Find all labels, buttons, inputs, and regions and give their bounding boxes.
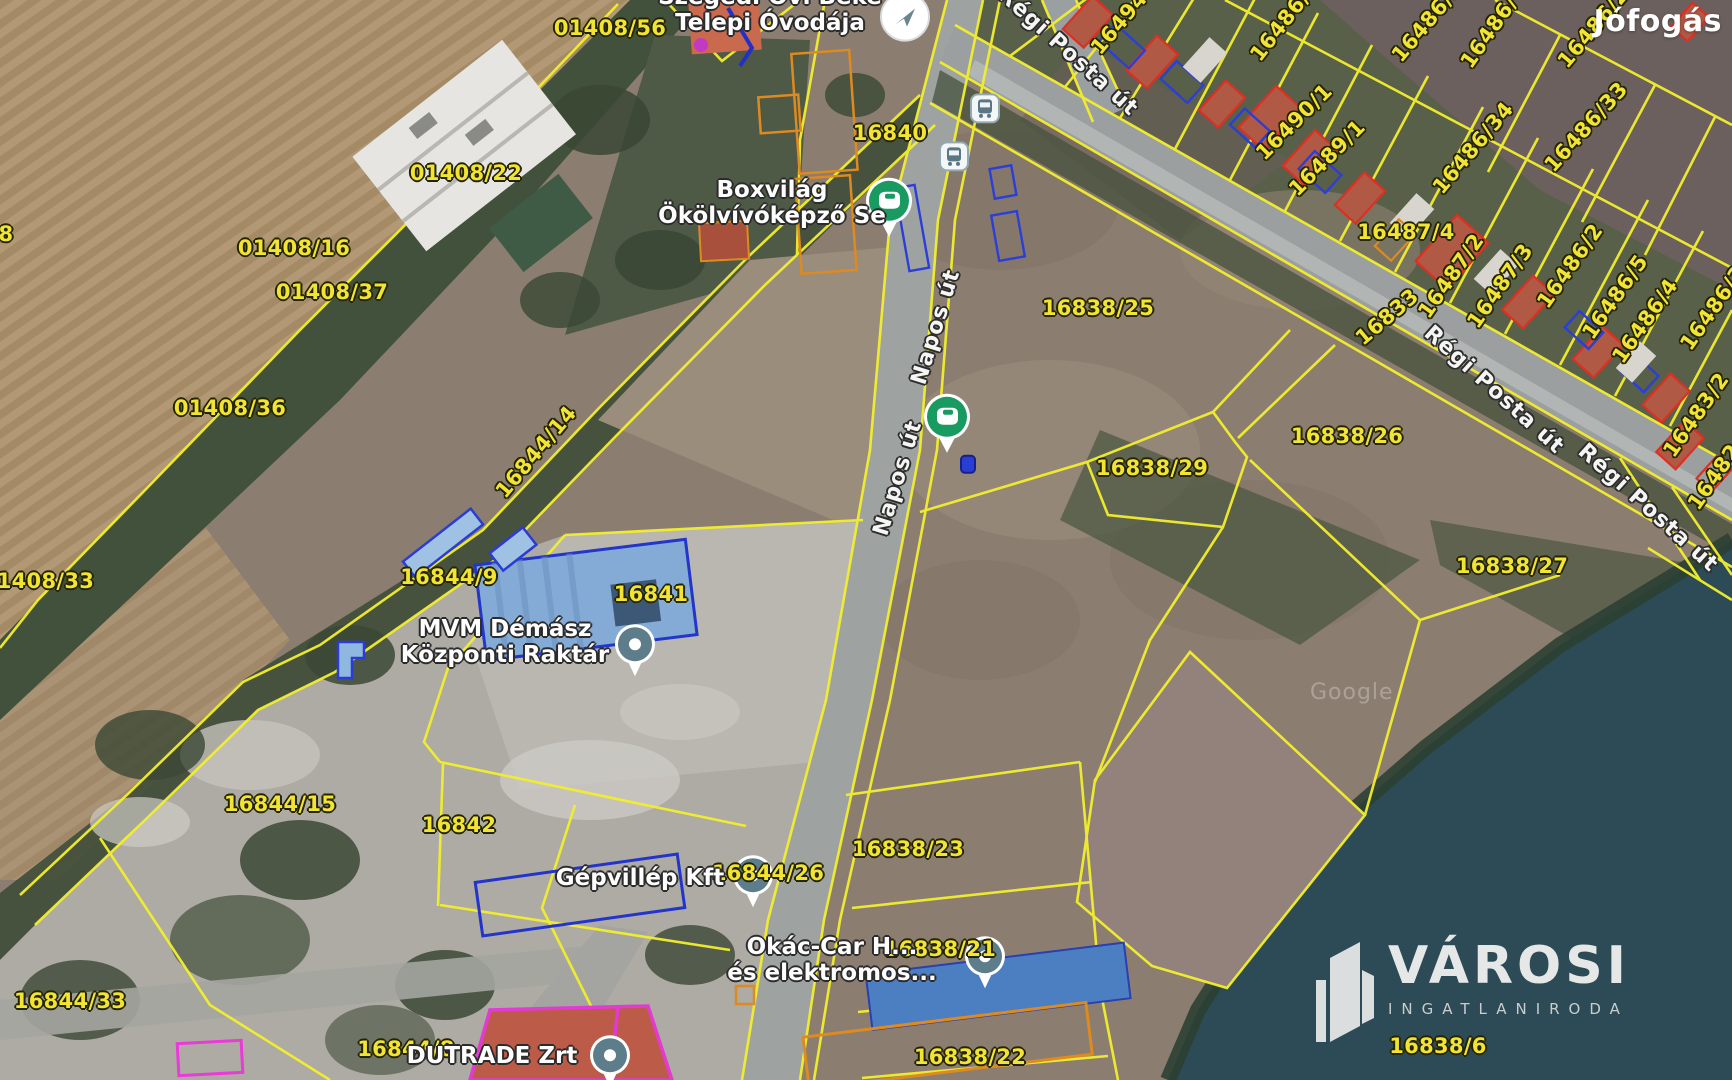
satellite-map[interactable]: 01408/5601408/2201408/1601408/3701408/36… bbox=[0, 0, 1732, 1080]
parcel-label: 16486/ bbox=[1456, 0, 1523, 73]
parcel-label: 16844/33 bbox=[14, 989, 126, 1013]
agency-building-icon bbox=[1302, 938, 1374, 1054]
street-name-label: Napos út bbox=[869, 417, 928, 538]
poi-label: MVM DémászKözponti Raktár bbox=[401, 616, 610, 668]
parcel-label: 16486/34 bbox=[1428, 97, 1519, 198]
poi-label-line: Gépvillép Kft bbox=[556, 865, 724, 891]
poi-label-line: DUTRADE Zrt bbox=[407, 1043, 578, 1069]
parcel-label: 16486/3 bbox=[1675, 261, 1732, 355]
map-labels-layer: 01408/5601408/2201408/1601408/3701408/36… bbox=[0, 0, 1732, 1080]
poi-label: BoxvilágÖkölvívóképző Se bbox=[658, 177, 886, 229]
parcel-label: 16841 bbox=[614, 582, 689, 606]
poi-label: Okác-Car H...és elektromos... bbox=[727, 934, 936, 986]
jofogas-logo: Jófogás bbox=[1593, 4, 1722, 39]
parcel-label: 16486/33 bbox=[1539, 77, 1632, 177]
street-name-label: Napos út bbox=[907, 266, 966, 387]
agency-logo: VÁROSI INGATLANIRODA bbox=[1302, 938, 1630, 1054]
parcel-label: 16838/27 bbox=[1456, 554, 1568, 578]
poi-label-line: Szegedi Óvi Béke bbox=[658, 0, 882, 10]
parcel-label: 16838/22 bbox=[914, 1045, 1026, 1069]
parcel-label: 01408/22 bbox=[410, 161, 522, 185]
parcel-label: 16838/25 bbox=[1042, 296, 1154, 320]
parcel-label: 16486/ bbox=[1245, 0, 1315, 66]
parcel-label: 01408/56 bbox=[554, 16, 666, 40]
parcel-label: 8 bbox=[0, 222, 13, 246]
parcel-label: 16844/14 bbox=[491, 401, 582, 502]
poi-label-line: MVM Démász bbox=[401, 616, 610, 642]
parcel-label: 01408/16 bbox=[238, 236, 350, 260]
parcel-label: 16844/15 bbox=[224, 792, 336, 816]
poi-label: Szegedi Óvi BékeTelepi Óvodája bbox=[658, 0, 882, 36]
poi-label-line: Okác-Car H... bbox=[727, 934, 936, 960]
parcel-label: 01408/37 bbox=[276, 280, 388, 304]
agency-name: VÁROSI bbox=[1388, 938, 1630, 994]
agency-subtitle: INGATLANIRODA bbox=[1388, 1000, 1630, 1018]
poi-label-line: Ökölvívóképző Se bbox=[658, 203, 886, 229]
poi-label-line: Boxvilág bbox=[658, 177, 886, 203]
parcel-label: 16486/2 bbox=[1532, 219, 1608, 313]
parcel-label: 16833 bbox=[1351, 284, 1424, 350]
parcel-label: 16838/26 bbox=[1291, 424, 1403, 448]
parcel-label: 16844/26 bbox=[712, 861, 824, 885]
imagery-attribution: Google bbox=[1310, 680, 1394, 705]
parcel-label: 16482 bbox=[1683, 440, 1732, 515]
parcel-label: 16487/4 bbox=[1357, 220, 1454, 244]
poi-label-line: és elektromos... bbox=[727, 960, 936, 986]
parcel-label: 16844/9 bbox=[400, 565, 497, 589]
parcel-label: 16840 bbox=[853, 121, 928, 145]
parcel-label: 16838/23 bbox=[852, 837, 964, 861]
parcel-label: 16842 bbox=[422, 813, 497, 837]
parcel-label: 16494 bbox=[1086, 0, 1152, 59]
parcel-label: 01408/36 bbox=[174, 396, 286, 420]
parcel-label: 16838/29 bbox=[1096, 456, 1208, 480]
poi-label-line: Központi Raktár bbox=[401, 642, 610, 668]
parcel-label: 01408/33 bbox=[0, 569, 94, 593]
poi-label: DUTRADE Zrt bbox=[407, 1043, 578, 1069]
poi-label-line: Telepi Óvodája bbox=[658, 10, 882, 36]
poi-label: Gépvillép Kft bbox=[556, 865, 724, 891]
street-name-label: Régi Posta út bbox=[1419, 321, 1569, 460]
